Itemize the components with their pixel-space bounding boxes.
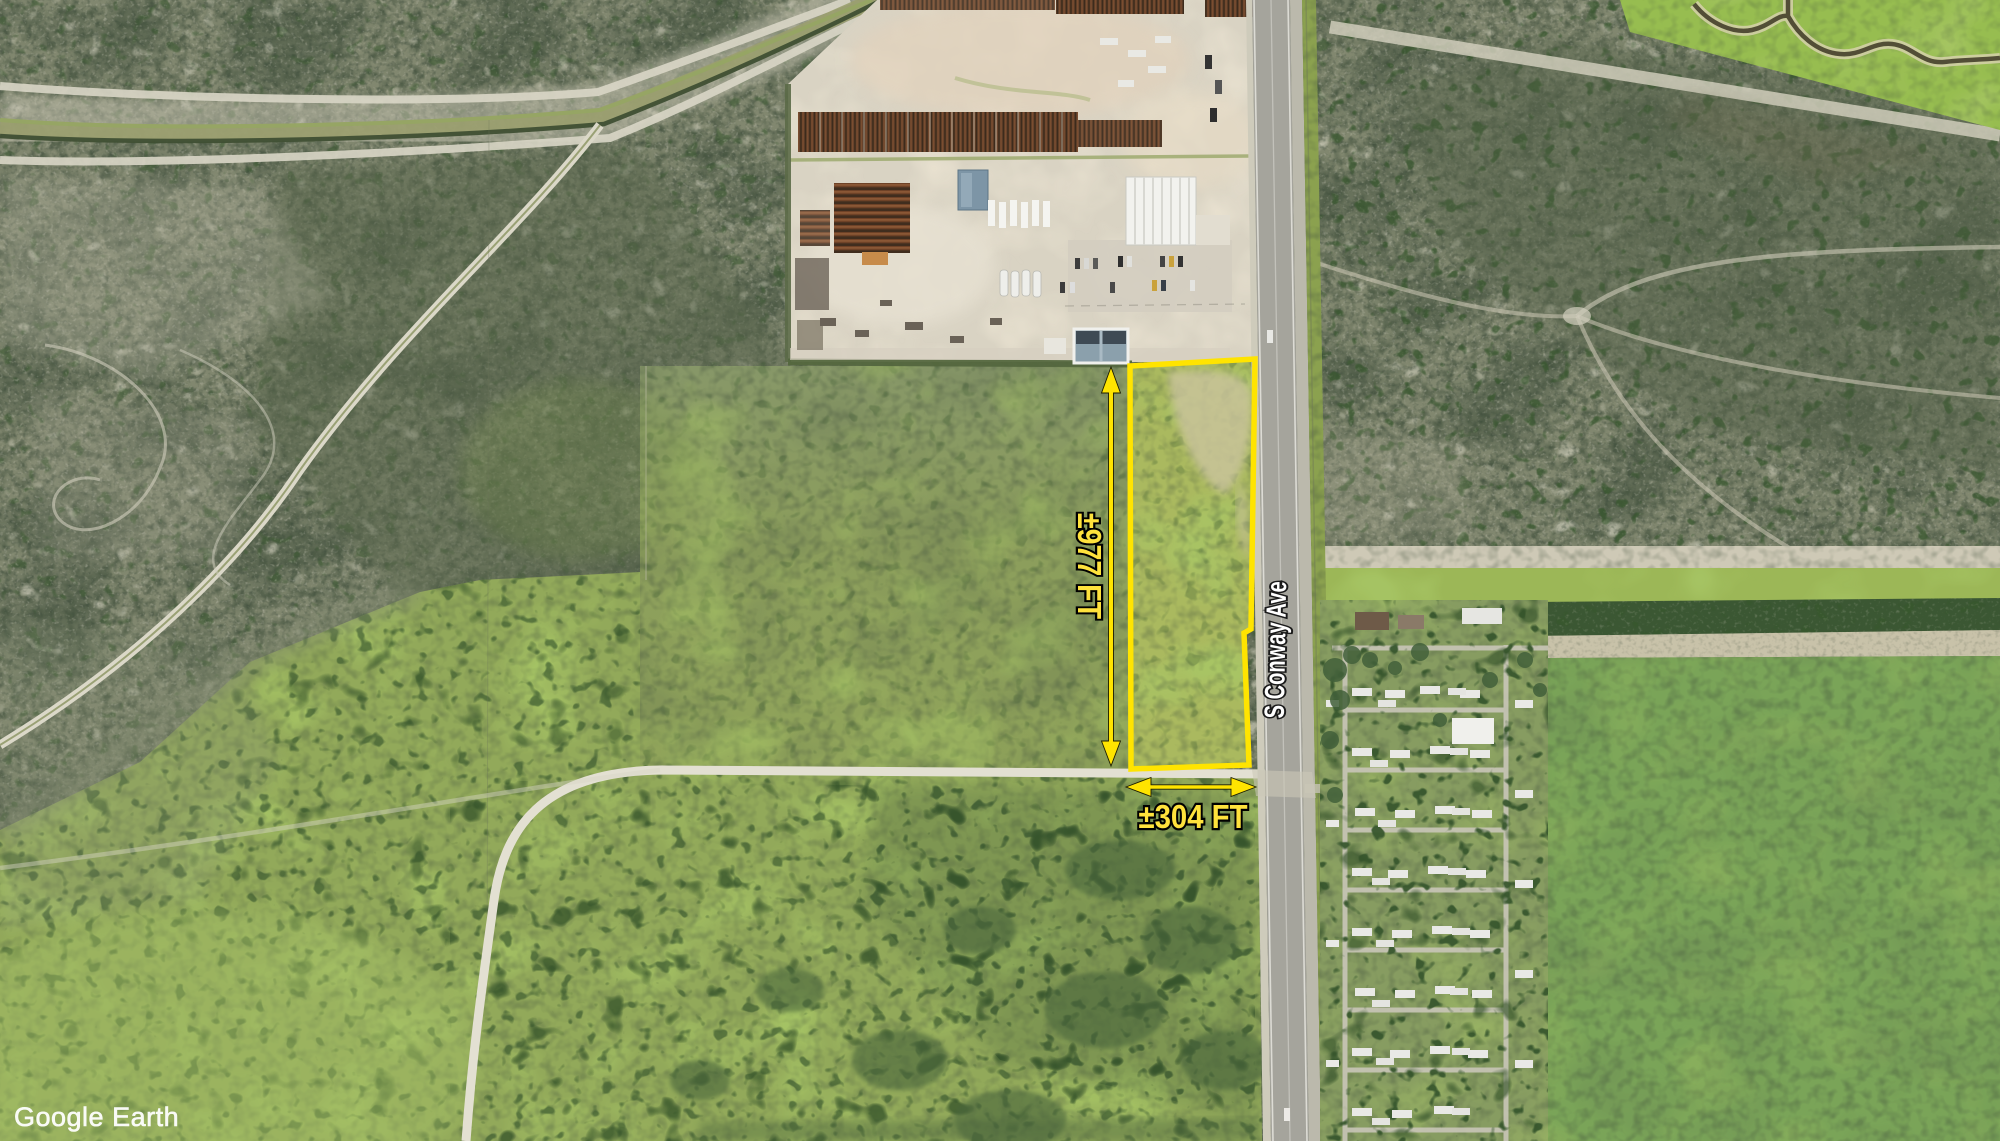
svg-text:±977 FT: ±977 FT [1071,513,1108,619]
svg-text:S Conway Ave: S Conway Ave [1259,581,1292,719]
svg-text:Google Earth: Google Earth [14,1102,179,1132]
svg-text:±304 FT: ±304 FT [1139,798,1248,835]
